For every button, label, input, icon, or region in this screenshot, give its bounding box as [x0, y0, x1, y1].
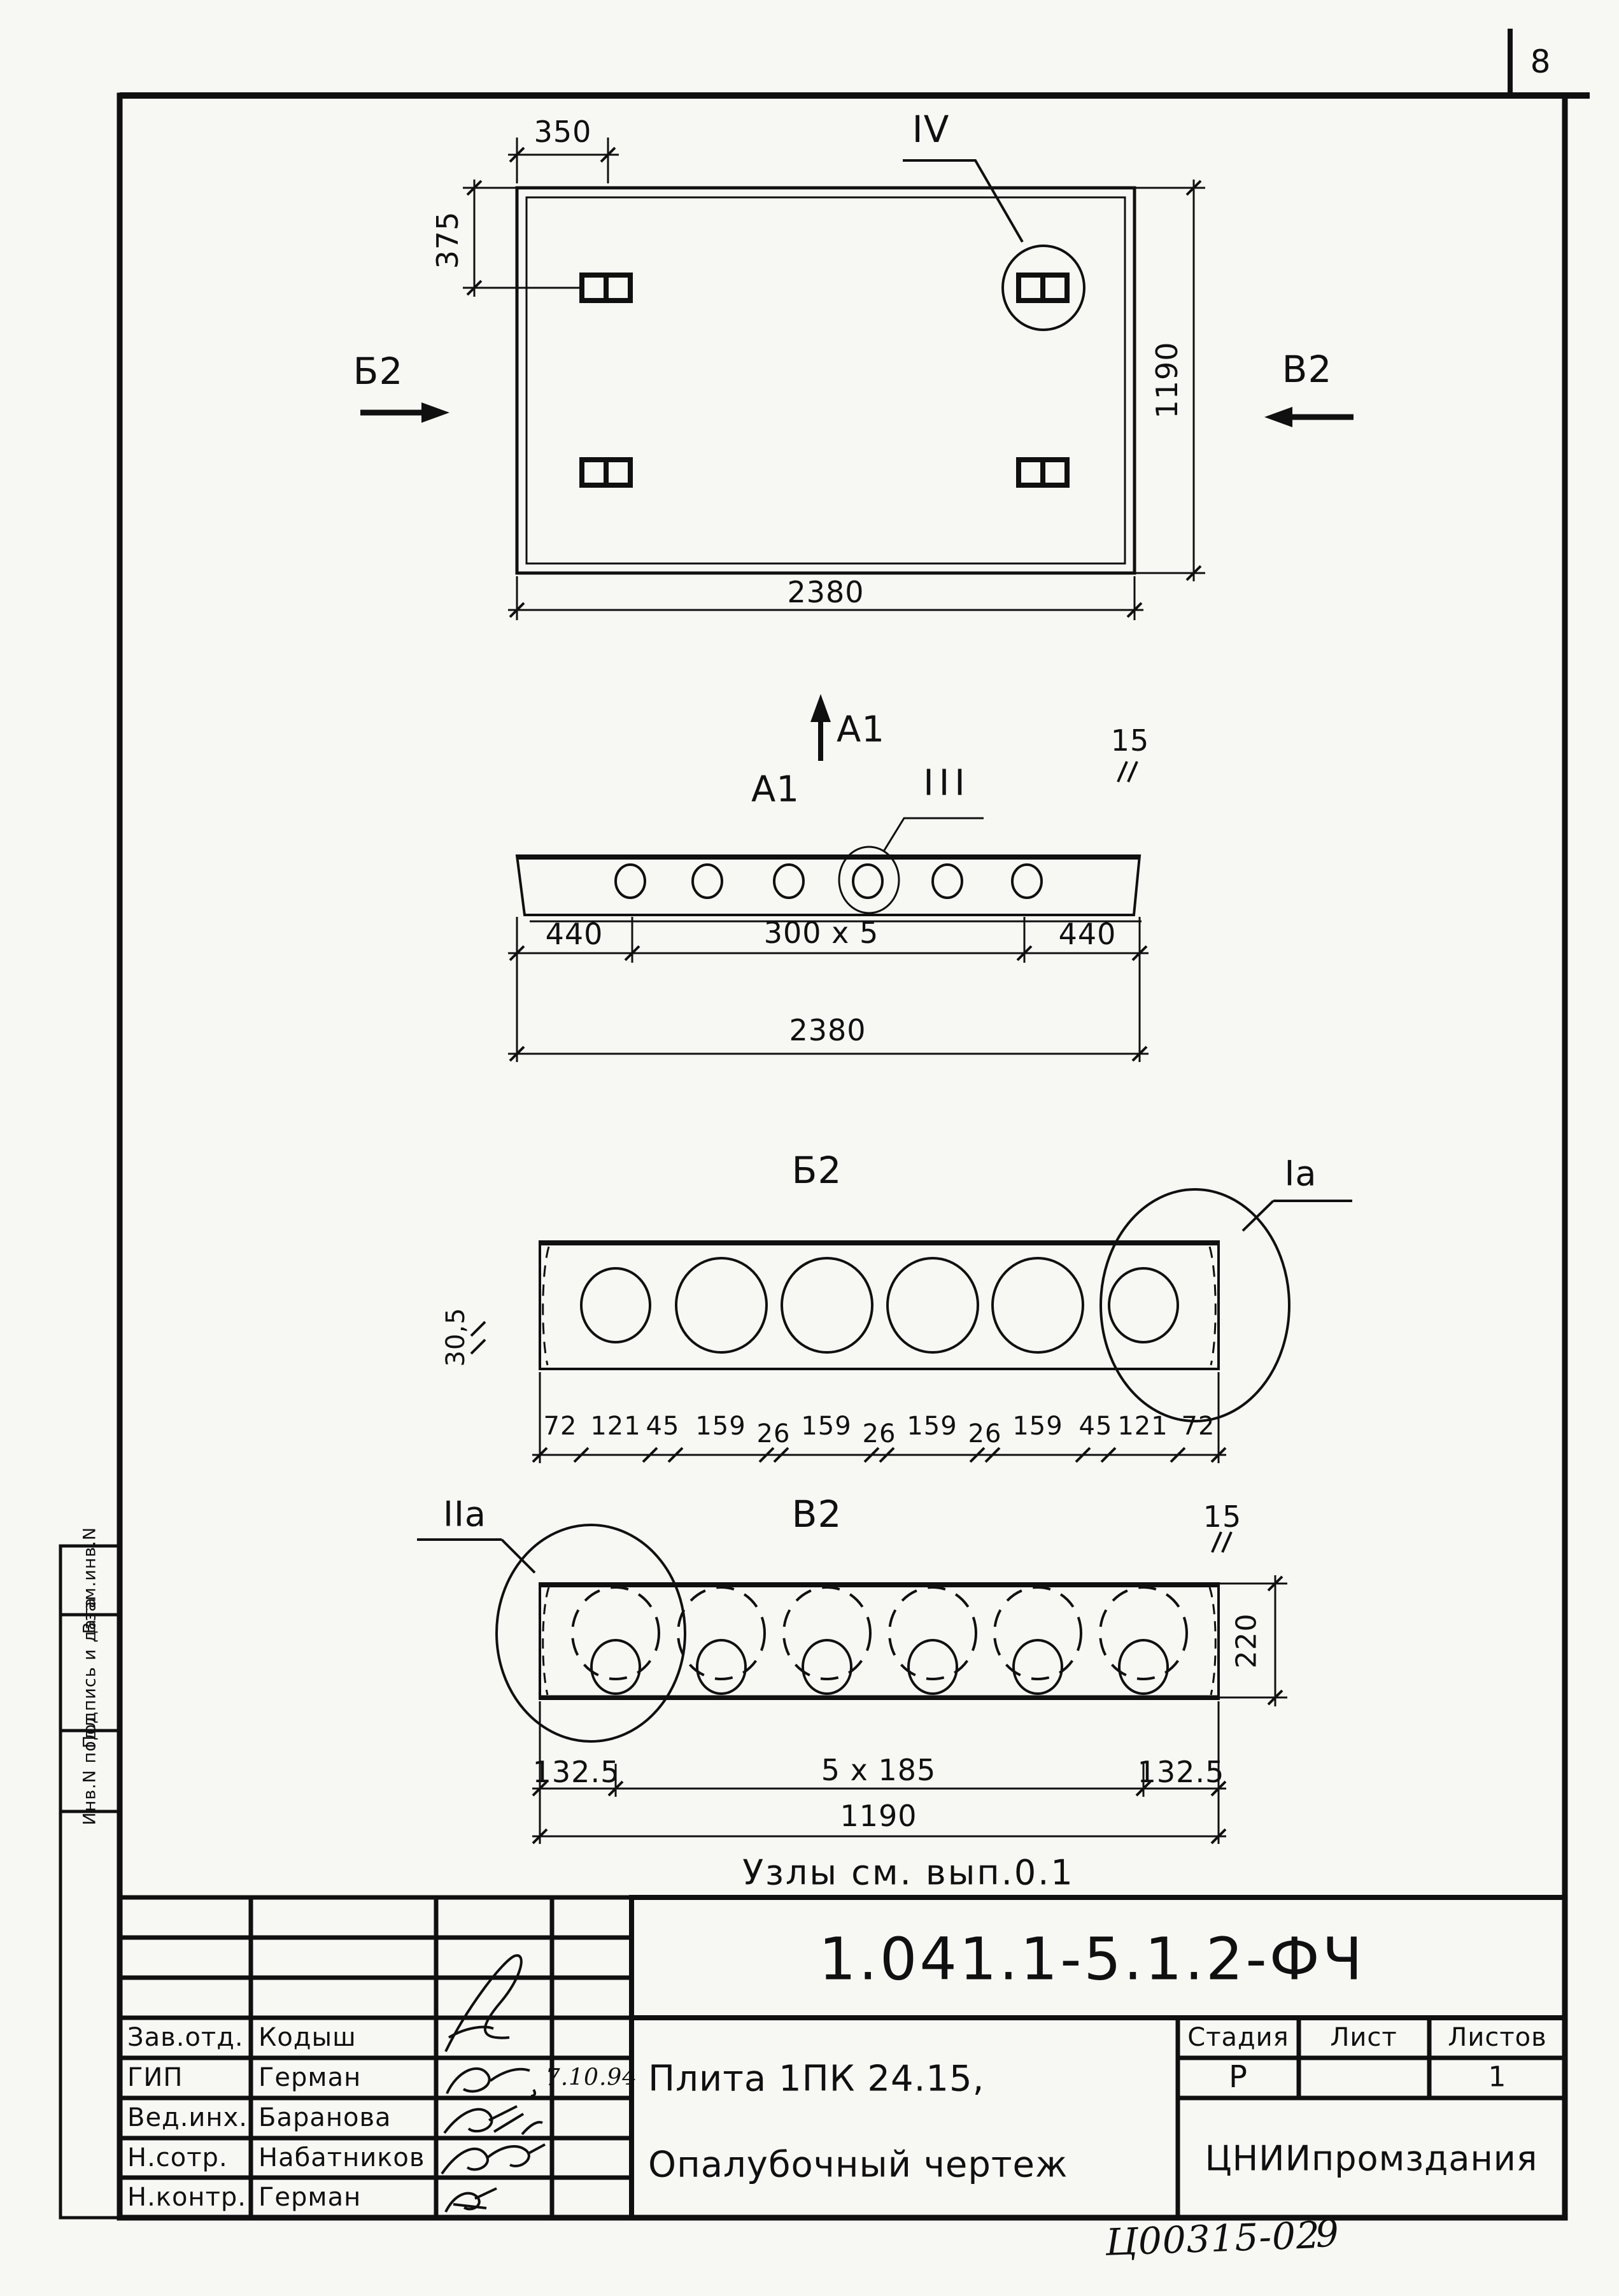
row-role-ved-inzh: Вед.инх. — [127, 2103, 248, 2132]
plan-dim-1190: 1190 — [1150, 341, 1184, 418]
row-role-n-sotr: Н.сотр. — [127, 2143, 228, 2172]
a1-dim-440-right: 440 — [1059, 917, 1117, 951]
row-name-nabatnikov: Набатников — [258, 2143, 425, 2172]
units-note: Узлы см. вып.0.1 — [742, 1853, 1075, 1893]
lifting-loop-bottom-left — [582, 460, 630, 485]
v2-dim-132-right: 132.5 — [1138, 1755, 1225, 1789]
plan-section-v2-label: В2 — [1282, 348, 1333, 391]
row-name-kodysh: Кодыш — [258, 2023, 357, 2052]
v2-dim-220: 220 — [1231, 1613, 1263, 1669]
v2-dim-132-left: 132.5 — [533, 1755, 620, 1789]
b2-dim-0: 72 — [544, 1412, 577, 1441]
row-role-n-kontr: Н.контр. — [127, 2183, 246, 2212]
stamp-page: 9 — [1314, 2211, 1341, 2256]
detail-circle-iv — [903, 160, 1084, 330]
detail-circle-ia — [1101, 1189, 1352, 1421]
v2-dim-5x185: 5 x 185 — [821, 1753, 937, 1787]
b2-dim-4: 26 — [757, 1419, 791, 1449]
section-arrow-v2 — [1264, 407, 1354, 427]
section-a1-holes — [616, 865, 1042, 898]
a1-dim-2380: 2380 — [789, 1013, 866, 1047]
lifting-loop-top-left — [582, 275, 630, 301]
section-b2-cores — [581, 1258, 1178, 1352]
sheets-header: Листов — [1448, 2023, 1546, 2052]
b2-edge-dim-30-5: 30,5 — [441, 1307, 470, 1366]
signature-zav-otd — [446, 1955, 521, 2052]
section-v2-openings — [591, 1640, 1168, 1694]
b2-dim-7: 159 — [907, 1412, 957, 1441]
v2-title: В2 — [792, 1492, 842, 1536]
plan-section-b2-label: Б2 — [353, 350, 404, 393]
signature-gip — [447, 2069, 535, 2096]
b2-dim-1: 121 — [590, 1412, 640, 1441]
section-a1-direction-arrow — [810, 694, 831, 761]
section-b2-outline — [540, 1242, 1219, 1369]
stamp-code: Ц00315-02 — [1105, 2213, 1321, 2264]
a1-chamfer-15: 15 — [1111, 723, 1150, 758]
row-name-german-2: Герман — [258, 2183, 361, 2212]
plan-detail-iv-label: IV — [912, 108, 950, 151]
plan-dim-2380: 2380 — [787, 575, 864, 609]
v2-dim-1190: 1190 — [840, 1799, 917, 1833]
a1-dim-300x5: 300 x 5 — [764, 916, 879, 950]
section-arrow-b2 — [360, 402, 449, 423]
signature-ved-inzh — [444, 2106, 542, 2134]
lifting-loop-top-right — [1019, 275, 1067, 301]
detail-circle-iia — [417, 1525, 685, 1741]
drawing-linework — [0, 0, 1619, 2296]
row-role-gip: ГИП — [127, 2063, 183, 2092]
sheets-value: 1 — [1488, 2061, 1507, 2094]
doc-number: 1.041.1-5.1.2-ФЧ — [819, 1925, 1365, 1994]
section-a1-chamfer-ticks — [1118, 762, 1137, 782]
a1-title: A1 — [751, 769, 800, 811]
stage-value: Р — [1229, 2059, 1248, 2095]
b2-title: Б2 — [792, 1149, 842, 1192]
plan-dim-350: 350 — [534, 115, 592, 149]
v2-chamfer-15: 15 — [1203, 1499, 1242, 1534]
b2-dim-2: 45 — [646, 1412, 680, 1441]
section-v2-hidden-cores — [572, 1587, 1187, 1679]
stage-header: Стадия — [1187, 2023, 1289, 2052]
b2-dim-9: 159 — [1012, 1412, 1063, 1441]
b2-dim-10: 45 — [1079, 1412, 1113, 1441]
section-v2-chamfer-ticks — [1212, 1532, 1231, 1552]
row-name-baranova: Баранова — [258, 2103, 392, 2132]
margin-inv-podl: Инв.N подл — [80, 1716, 100, 1825]
product-title-line1: Плита 1ПК 24.15, — [648, 2059, 984, 2100]
plan-dim-375: 375 — [430, 211, 465, 269]
signature-n-sotr — [442, 2144, 545, 2174]
row-name-german-1: Герман — [258, 2063, 361, 2092]
section-b2-edge-ticks — [471, 1322, 485, 1354]
sheet-header: Лист — [1330, 2023, 1397, 2052]
v2-detail-iia-label: IIa — [443, 1494, 486, 1534]
b2-dim-12: 72 — [1182, 1412, 1215, 1441]
section-v2-outline — [540, 1584, 1219, 1699]
a1-dim-440-left: 440 — [546, 917, 604, 951]
lifting-loop-bottom-right — [1019, 460, 1067, 485]
a1-detail-iii-label: III — [923, 763, 970, 804]
row-date-gip: 7.10.94 — [546, 2065, 637, 2091]
b2-dim-6: 26 — [863, 1419, 896, 1449]
row-role-zav-otd: Зав.отд. — [127, 2023, 244, 2052]
b2-dim-8: 26 — [968, 1419, 1002, 1449]
section-a1-outline — [517, 856, 1142, 921]
page-number: 8 — [1531, 43, 1552, 80]
a1-direction-label: A1 — [837, 709, 885, 751]
b2-detail-ia-label: Ia — [1284, 1154, 1317, 1194]
product-title-line2: Опалубочный чертеж — [648, 2144, 1068, 2186]
signature-n-kontr — [446, 2188, 497, 2212]
organization: ЦНИИпромздания — [1205, 2139, 1538, 2179]
b2-dim-3: 159 — [695, 1412, 746, 1441]
b2-dim-5: 159 — [801, 1412, 851, 1441]
b2-dim-11: 121 — [1117, 1412, 1168, 1441]
drawing-sheet: 8 350 375 1190 2380 IV Б2 В2 A1 A1 III 1… — [0, 0, 1619, 2296]
